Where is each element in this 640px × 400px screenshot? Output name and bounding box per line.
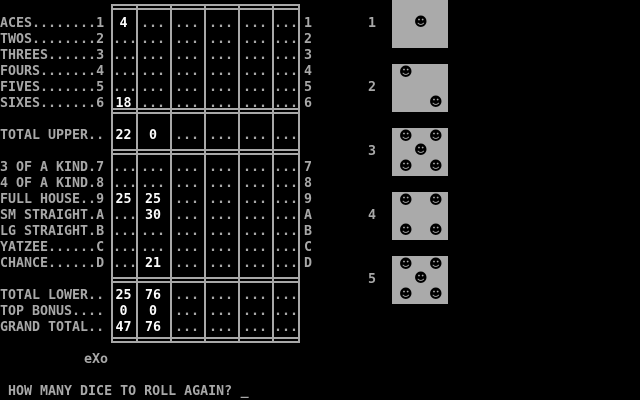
score-cell-sm-straight-col2: 30 (138, 208, 168, 224)
score-cell-total-lower-col2: 76 (138, 288, 168, 304)
score-cell-grand-total-col1: 47 (113, 320, 134, 336)
score-cell-total-lower-col4: ... (206, 288, 236, 304)
score-label-sixes: SIXES.......6 (0, 96, 104, 112)
die-pip-icon: ☻ (414, 271, 426, 286)
score-cell-twos-col4: ... (206, 32, 236, 48)
score-label-sm-straight: SM STRAIGHT.A (0, 208, 104, 224)
die-2-face: ☻☻ (392, 64, 448, 112)
die-4-label: 4 (368, 208, 376, 224)
score-cell-grand-total-col3: ... (172, 320, 202, 336)
score-rowkey-yatzee: C (304, 240, 312, 256)
score-cell-grand-total-col5: ... (240, 320, 270, 336)
score-rowkey-sm-straight: A (304, 208, 312, 224)
score-cell-four-of-a-kind-col3: ... (172, 176, 202, 192)
grid-hline (111, 4, 300, 6)
grid-hline (111, 277, 300, 279)
score-cell-aces-col2: ... (138, 16, 168, 32)
score-cell-three-of-a-kind-col2: ... (138, 160, 168, 176)
die-pip-icon: ☻ (414, 15, 426, 30)
die-pip-icon: ☻ (429, 257, 441, 272)
score-cell-lg-straight-col2: ... (138, 224, 168, 240)
score-cell-full-house-col2: 25 (138, 192, 168, 208)
score-cell-grand-total-col2: 76 (138, 320, 168, 336)
die-pip-icon: ☻ (429, 193, 441, 208)
score-rowkey-fives: 5 (304, 80, 312, 96)
score-label-full-house: FULL HOUSE..9 (0, 192, 104, 208)
grid-vline (204, 4, 206, 343)
score-cell-top-bonus-col6: ... (274, 304, 296, 320)
grid-hline (111, 281, 300, 283)
score-rowkey-sixes: 6 (304, 96, 312, 112)
score-cell-chance-col4: ... (206, 256, 236, 272)
score-cell-four-of-a-kind-col6: ... (274, 176, 296, 192)
die-1-face: ☻ (392, 0, 448, 48)
score-cell-aces-col1: 4 (113, 16, 134, 32)
score-cell-grand-total-col6: ... (274, 320, 296, 336)
die-pip-icon: ☻ (429, 223, 441, 238)
roll-again-prompt: HOW MANY DICE TO ROLL AGAIN?_ (8, 384, 249, 400)
grid-hline (111, 153, 300, 155)
score-rowkey-three-of-a-kind: 7 (304, 160, 312, 176)
grid-hline (111, 108, 300, 110)
score-cell-aces-col3: ... (172, 16, 202, 32)
score-cell-three-of-a-kind-col5: ... (240, 160, 270, 176)
score-cell-fours-col4: ... (206, 64, 236, 80)
score-cell-full-house-col4: ... (206, 192, 236, 208)
score-label-three-of-a-kind: 3 OF A KIND.7 (0, 160, 104, 176)
die-5-face: ☻☻☻☻☻ (392, 256, 448, 304)
score-cell-sm-straight-col3: ... (172, 208, 202, 224)
score-cell-total-lower-col3: ... (172, 288, 202, 304)
grid-vline (238, 4, 240, 343)
score-cell-chance-col3: ... (172, 256, 202, 272)
grid-vline (298, 4, 300, 343)
die-4-face: ☻☻☻☻ (392, 192, 448, 240)
score-rowkey-full-house: 9 (304, 192, 312, 208)
grid-hline (111, 341, 300, 343)
score-cell-four-of-a-kind-col2: ... (138, 176, 168, 192)
score-label-total-lower: TOTAL LOWER.. (0, 288, 104, 304)
grid-hline (111, 112, 300, 114)
score-cell-top-bonus-col2: 0 (138, 304, 168, 320)
score-cell-three-of-a-kind-col6: ... (274, 160, 296, 176)
score-rowkey-four-of-a-kind: 8 (304, 176, 312, 192)
score-rowkey-threes: 3 (304, 48, 312, 64)
score-cell-total-lower-col6: ... (274, 288, 296, 304)
prompt-text: HOW MANY DICE TO ROLL AGAIN? (8, 384, 232, 399)
die-pip-icon: ☻ (399, 193, 411, 208)
score-cell-aces-col4: ... (206, 16, 236, 32)
die-pip-icon: ☻ (429, 129, 441, 144)
die-pip-icon: ☻ (399, 129, 411, 144)
die-pip-icon: ☻ (399, 159, 411, 174)
score-rowkey-twos: 2 (304, 32, 312, 48)
score-cell-total-upper-col4: ... (206, 128, 236, 144)
score-rowkey-fours: 4 (304, 64, 312, 80)
score-label-grand-total: GRAND TOTAL.. (0, 320, 104, 336)
score-cell-grand-total-col4: ... (206, 320, 236, 336)
score-cell-threes-col2: ... (138, 48, 168, 64)
score-cell-threes-col1: ... (113, 48, 134, 64)
score-cell-aces-col6: ... (274, 16, 296, 32)
score-cell-twos-col5: ... (240, 32, 270, 48)
score-cell-top-bonus-col5: ... (240, 304, 270, 320)
score-cell-total-upper-col6: ... (274, 128, 296, 144)
score-label-twos: TWOS........2 (0, 32, 104, 48)
die-pip-icon: ☻ (429, 287, 441, 302)
score-label-total-upper: TOTAL UPPER.. (0, 128, 104, 144)
score-cell-chance-col1: ... (113, 256, 134, 272)
score-cell-lg-straight-col3: ... (172, 224, 202, 240)
grid-vline (170, 4, 172, 343)
score-cell-sm-straight-col1: ... (113, 208, 134, 224)
score-cell-full-house-col5: ... (240, 192, 270, 208)
score-rowkey-chance: D (304, 256, 312, 272)
score-cell-fours-col6: ... (274, 64, 296, 80)
score-cell-yatzee-col3: ... (172, 240, 202, 256)
score-cell-total-upper-col2: 0 (138, 128, 168, 144)
score-cell-total-lower-col1: 25 (113, 288, 134, 304)
score-cell-twos-col2: ... (138, 32, 168, 48)
grid-hline (111, 8, 300, 10)
score-cell-chance-col5: ... (240, 256, 270, 272)
die-1-label: 1 (368, 16, 376, 32)
score-cell-yatzee-col1: ... (113, 240, 134, 256)
score-cell-three-of-a-kind-col4: ... (206, 160, 236, 176)
die-3-face: ☻☻☻☻☻ (392, 128, 448, 176)
die-pip-icon: ☻ (429, 95, 441, 110)
score-cell-twos-col6: ... (274, 32, 296, 48)
score-cell-four-of-a-kind-col4: ... (206, 176, 236, 192)
score-cell-fives-col3: ... (172, 80, 202, 96)
die-pip-icon: ☻ (399, 65, 411, 80)
score-label-yatzee: YATZEE......C (0, 240, 104, 256)
score-cell-total-upper-col3: ... (172, 128, 202, 144)
score-cell-fives-col1: ... (113, 80, 134, 96)
score-cell-threes-col6: ... (274, 48, 296, 64)
score-cell-yatzee-col2: ... (138, 240, 168, 256)
score-cell-total-upper-col1: 22 (113, 128, 134, 144)
score-cell-yatzee-col6: ... (274, 240, 296, 256)
score-cell-four-of-a-kind-col1: ... (113, 176, 134, 192)
score-rowkey-lg-straight: B (304, 224, 312, 240)
die-pip-icon: ☻ (399, 287, 411, 302)
score-cell-threes-col5: ... (240, 48, 270, 64)
score-cell-top-bonus-col3: ... (172, 304, 202, 320)
grid-vline (136, 4, 138, 343)
score-cell-top-bonus-col4: ... (206, 304, 236, 320)
grid-vline (111, 4, 113, 343)
score-rowkey-aces: 1 (304, 16, 312, 32)
score-cell-fours-col1: ... (113, 64, 134, 80)
score-cell-lg-straight-col6: ... (274, 224, 296, 240)
die-pip-icon: ☻ (399, 223, 411, 238)
score-cell-fives-col2: ... (138, 80, 168, 96)
score-cell-full-house-col1: 25 (113, 192, 134, 208)
score-cell-aces-col5: ... (240, 16, 270, 32)
score-cell-yatzee-col5: ... (240, 240, 270, 256)
score-cell-fives-col5: ... (240, 80, 270, 96)
score-cell-lg-straight-col1: ... (113, 224, 134, 240)
text-cursor[interactable]: _ (241, 384, 249, 400)
score-label-fives: FIVES.......5 (0, 80, 104, 96)
score-cell-lg-straight-col5: ... (240, 224, 270, 240)
score-cell-threes-col3: ... (172, 48, 202, 64)
die-pip-icon: ☻ (429, 159, 441, 174)
score-label-lg-straight: LG STRAIGHT.B (0, 224, 104, 240)
score-label-top-bonus: TOP BONUS.... (0, 304, 104, 320)
score-cell-fives-col6: ... (274, 80, 296, 96)
score-cell-three-of-a-kind-col1: ... (113, 160, 134, 176)
score-label-threes: THREES......3 (0, 48, 104, 64)
score-cell-lg-straight-col4: ... (206, 224, 236, 240)
die-pip-icon: ☻ (399, 257, 411, 272)
die-2-label: 2 (368, 80, 376, 96)
score-cell-fours-col3: ... (172, 64, 202, 80)
score-cell-fours-col5: ... (240, 64, 270, 80)
die-pip-icon: ☻ (414, 143, 426, 158)
score-cell-four-of-a-kind-col5: ... (240, 176, 270, 192)
score-cell-full-house-col3: ... (172, 192, 202, 208)
score-cell-yatzee-col4: ... (206, 240, 236, 256)
score-cell-twos-col3: ... (172, 32, 202, 48)
grid-vline (272, 4, 274, 343)
yatzee-game-screen: ACES........14...............1TWOS......… (0, 0, 640, 400)
score-label-four-of-a-kind: 4 OF A KIND.8 (0, 176, 104, 192)
score-cell-fives-col4: ... (206, 80, 236, 96)
score-cell-total-upper-col5: ... (240, 128, 270, 144)
grid-hline (111, 149, 300, 151)
score-cell-full-house-col6: ... (274, 192, 296, 208)
score-cell-total-lower-col5: ... (240, 288, 270, 304)
score-label-aces: ACES........1 (0, 16, 104, 32)
score-cell-sm-straight-col4: ... (206, 208, 236, 224)
score-cell-three-of-a-kind-col3: ... (172, 160, 202, 176)
score-cell-sm-straight-col6: ... (274, 208, 296, 224)
score-cell-sm-straight-col5: ... (240, 208, 270, 224)
score-label-fours: FOURS.......4 (0, 64, 104, 80)
score-cell-threes-col4: ... (206, 48, 236, 64)
die-5-label: 5 (368, 272, 376, 288)
score-cell-top-bonus-col1: 0 (113, 304, 134, 320)
score-cell-chance-col2: 21 (138, 256, 168, 272)
score-cell-fours-col2: ... (138, 64, 168, 80)
score-label-chance: CHANCE......D (0, 256, 104, 272)
score-cell-twos-col1: ... (113, 32, 134, 48)
exo-watermark: eXo (84, 352, 108, 368)
grid-hline (111, 337, 300, 339)
score-cell-chance-col6: ... (274, 256, 296, 272)
die-3-label: 3 (368, 144, 376, 160)
